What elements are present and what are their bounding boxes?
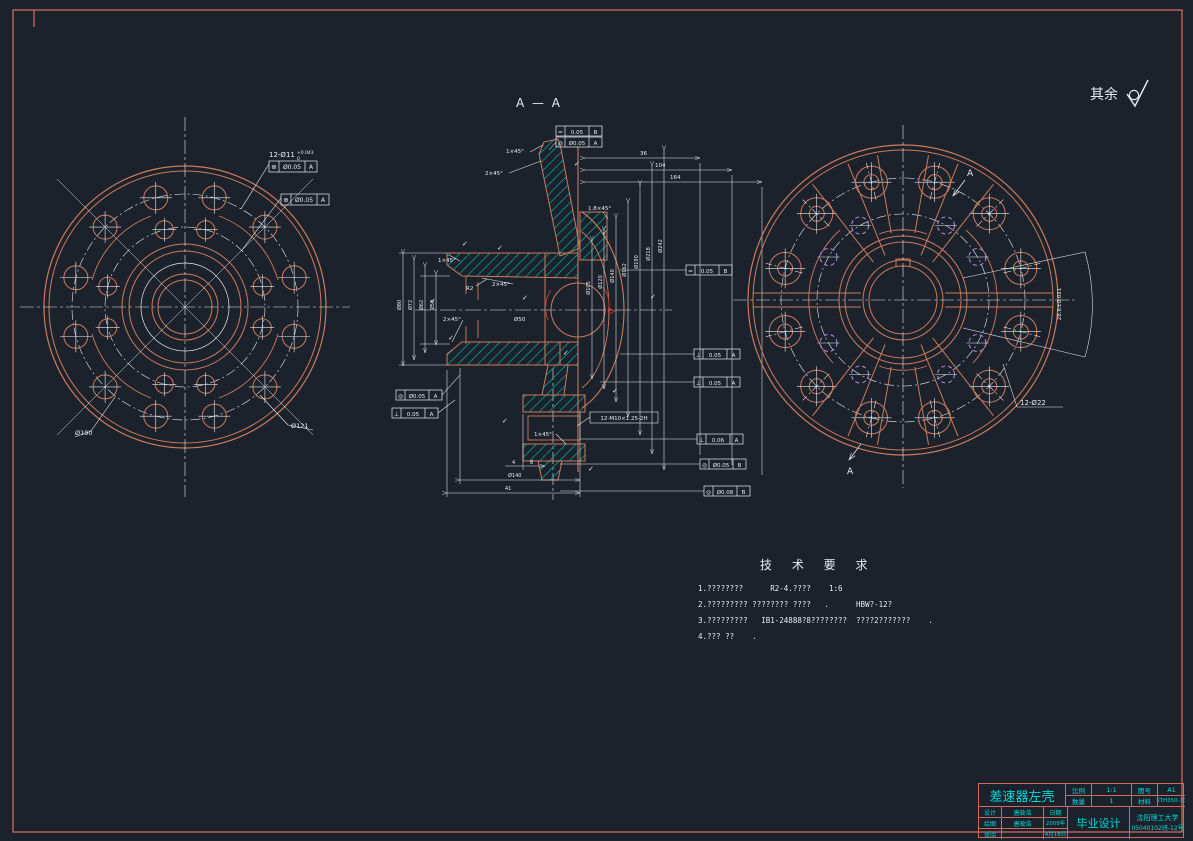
technical-requirements: 技 术 要 求 1.???????? R2-4.???? 1:6 2.?????…	[698, 556, 998, 645]
date-label: 日期	[1043, 806, 1067, 817]
gdt-value: Ø0.05	[409, 393, 426, 400]
dim-label: Ø218	[645, 247, 652, 260]
dim-label: 104	[655, 163, 666, 169]
arc-dim-label: 28.6±0.021	[1057, 288, 1063, 321]
left-view: 12-Ø11 +0.043 0 ⊕ Ø0.05 A ⊕ Ø0.05 A Ø190…	[20, 117, 350, 497]
class-no: 05040102班-12号	[1131, 824, 1183, 833]
title-block: 差速器左壳 比例 1:1 图号 A1 数量 1 材料 KTH350-10 设计 …	[978, 783, 1184, 838]
gdt-value: 0.05	[709, 353, 722, 359]
tech-req-line: 3.????????? IB1-24888?8???????? ????2???…	[698, 613, 998, 629]
chamfer-label: 1×45°	[438, 258, 456, 264]
roughness-icon: ✓	[497, 244, 503, 252]
roughness-icon: ✓	[502, 417, 508, 425]
gdt-datum: B	[724, 269, 728, 275]
review-name	[1001, 828, 1043, 839]
gdt-value: 0.06	[712, 438, 725, 444]
hole-note-tol-up: +0.043	[297, 150, 314, 156]
gdt-value: Ø0.05	[713, 462, 730, 469]
design-name: 唐政浩	[1001, 806, 1043, 817]
scale-value: 1:1	[1091, 784, 1131, 795]
date-year: 2009年	[1043, 817, 1067, 828]
review-label: 审阅	[979, 828, 1001, 839]
design-label: 设计	[979, 806, 1001, 817]
hatched-sections	[447, 139, 607, 480]
qty-value: 1	[1091, 795, 1131, 806]
thread-note-text: 12-M10×1.25-2H	[600, 416, 647, 422]
gdt-frame: ◎ Ø0.05 A	[396, 375, 460, 400]
chamfer-label: 2×45°	[492, 282, 510, 288]
gdt-frame: ◎ Ø0.08 B	[560, 486, 750, 496]
thread-note: 12-M10×1.25-2H	[577, 412, 658, 426]
roughness-icon: ✓	[602, 229, 608, 237]
date-day: 4月18日	[1043, 828, 1067, 839]
section-title: A — A	[504, 96, 574, 110]
chamfer-label: 1.8×45°	[588, 206, 611, 212]
gdt-symbol: ◎	[702, 462, 707, 469]
gdt-datum: A	[430, 412, 434, 418]
gdt-value: Ø0.05	[283, 164, 301, 171]
material-value: KTH350-10	[1157, 795, 1185, 806]
hole-note: 12-Ø11	[269, 151, 295, 159]
gdt-symbol: ◎	[398, 393, 403, 400]
roughness-symbol-icon	[1124, 78, 1154, 110]
dim-lines-right	[592, 150, 762, 475]
roughness-icon: ✓	[574, 160, 580, 168]
right-view: 28.6±0.021 12-Ø22 A A	[733, 125, 1092, 488]
hole-note: 12-Ø22	[1020, 399, 1046, 407]
section-arrow-label: A	[967, 169, 974, 179]
tech-req-line: 1.???????? R2-4.???? 1:6	[698, 581, 998, 597]
sheet-frame	[13, 10, 1182, 832]
drawing-no-label: 图号	[1131, 784, 1157, 795]
gdt-symbol: ⊥	[696, 352, 701, 359]
section-arrow-label: A	[847, 467, 854, 477]
dim-label: Ø190	[633, 255, 640, 268]
dim-label: Ø242	[657, 239, 664, 252]
gdt-frame: ⊥ 0.05 A	[392, 400, 455, 418]
gdt-frame: = 0.05 B ◎ Ø0.05 A	[549, 126, 602, 150]
project-name: 毕业设计	[1067, 806, 1129, 839]
gdt-value: Ø0.08	[717, 489, 734, 496]
section-view: Ø50 Ø62 Ø72 Ø80 Ø105 Ø120 Ø140 Ø162 Ø190…	[392, 126, 762, 500]
gdt-value: 0.05	[709, 381, 722, 387]
dim-label: Ø62	[418, 300, 425, 310]
gdt-frame: ⊕ Ø0.05 A	[281, 194, 329, 205]
dim-label: Ø72	[407, 300, 414, 310]
surface-note-text: 其余	[1090, 84, 1118, 104]
gdt-datum: A	[735, 438, 739, 444]
gdt-datum: B	[594, 130, 598, 136]
gdt-symbol: =	[688, 268, 693, 275]
draw-label: 绘图	[979, 817, 1001, 828]
roughness-icon: ✓	[563, 349, 569, 357]
roughness-icon: ✓	[650, 293, 656, 301]
tech-req-title: 技 术 要 求	[760, 556, 998, 573]
material-label: 材料	[1131, 795, 1157, 806]
dim-label: Ø140	[508, 472, 521, 479]
tech-req-line: 2.????????? ???????? ???? . HBW?-12?	[698, 597, 998, 613]
gdt-value: 0.05	[407, 412, 420, 418]
gdt-value: Ø0.05	[569, 140, 586, 147]
roughness-icon: ✓	[462, 240, 468, 248]
tech-req-line: 4.??? ?? .	[698, 629, 998, 645]
dim-label: Ø140	[609, 269, 616, 282]
gdt-symbol: ◎	[706, 489, 711, 496]
gdt-datum: B	[738, 463, 742, 469]
gdt-frame: ⊕ Ø0.05 A	[269, 161, 317, 172]
radius-label: R2	[466, 286, 473, 292]
school-cell: 沈阳理工大学 05040102班-12号	[1129, 806, 1185, 839]
gdt-frame: ⊥ 0.06 A	[580, 434, 743, 444]
chamfer-label: 1×45°	[534, 432, 552, 438]
gdt-symbol: ⊥	[699, 437, 704, 444]
roughness-icon: ✓	[430, 297, 436, 305]
dim-label: Ø120	[597, 275, 604, 288]
dim-label: Ø105	[585, 281, 592, 294]
gdt-symbol: ⊕	[271, 163, 276, 171]
dim-label: 164	[670, 175, 681, 181]
gdt-symbol: ⊕	[283, 196, 288, 204]
school-name: 沈阳理工大学	[1137, 813, 1179, 824]
gdt-symbol: ⊥	[394, 411, 399, 418]
dim-label: 36	[640, 151, 647, 157]
chamfer-label: 1×45°	[506, 149, 524, 155]
gdt-datum: A	[732, 381, 736, 387]
dim-label: Ø80	[396, 300, 403, 310]
gdt-value: Ø0.05	[295, 197, 313, 204]
chamfer-label: 2×45°	[443, 317, 461, 323]
qty-label: 数量	[1065, 795, 1091, 806]
dim-label: 41	[505, 486, 511, 492]
chamfer-label: 2×45°	[485, 171, 503, 177]
drawing-no-value: A1	[1157, 784, 1185, 795]
roughness-icon: ✓	[448, 334, 454, 342]
gdt-value: 0.05	[701, 269, 714, 275]
cad-drawing: 12-Ø11 +0.043 0 ⊕ Ø0.05 A ⊕ Ø0.05 A Ø190…	[0, 0, 1193, 841]
gdt-datum: B	[742, 490, 746, 496]
gdt-datum: A	[732, 353, 736, 359]
gdt-symbol: =	[558, 129, 563, 136]
roughness-icon: ✓	[588, 465, 594, 473]
dim-label: Ø50	[514, 316, 526, 323]
surface-roughness-note: 其余	[1090, 78, 1154, 110]
gdt-datum: A	[594, 141, 598, 147]
draw-name: 唐政浩	[1001, 817, 1043, 828]
gdt-datum: A	[309, 164, 314, 171]
roughness-icon: ✓	[522, 294, 528, 302]
scale-label: 比例	[1065, 784, 1091, 795]
roughness-icon: ✓	[612, 387, 618, 395]
surface-finish-marks: ✓ ✓ ✓ ✓ ✓ ✓ ✓ ✓ ✓ ✓ ✓ ✓	[430, 160, 656, 473]
gdt-frame: ⊥ 0.05 A	[620, 349, 740, 359]
gdt-symbol: ⊥	[696, 380, 701, 387]
gdt-datum: A	[321, 197, 326, 204]
section-arrow: A	[953, 169, 974, 196]
dim-label: Ø121	[291, 422, 309, 430]
dim-label: 8	[530, 460, 533, 466]
cad-canvas: 12-Ø11 +0.043 0 ⊕ Ø0.05 A ⊕ Ø0.05 A Ø190…	[0, 0, 1193, 841]
dim-label: Ø190	[75, 429, 93, 437]
part-name: 差速器左壳	[979, 784, 1065, 806]
gdt-symbol: ◎	[558, 140, 563, 147]
gdt-datum: A	[434, 394, 438, 400]
dim-label: 4	[512, 460, 515, 466]
gdt-value: 0.05	[571, 130, 584, 136]
gdt-frame: ⊥ 0.05 A	[600, 377, 740, 387]
